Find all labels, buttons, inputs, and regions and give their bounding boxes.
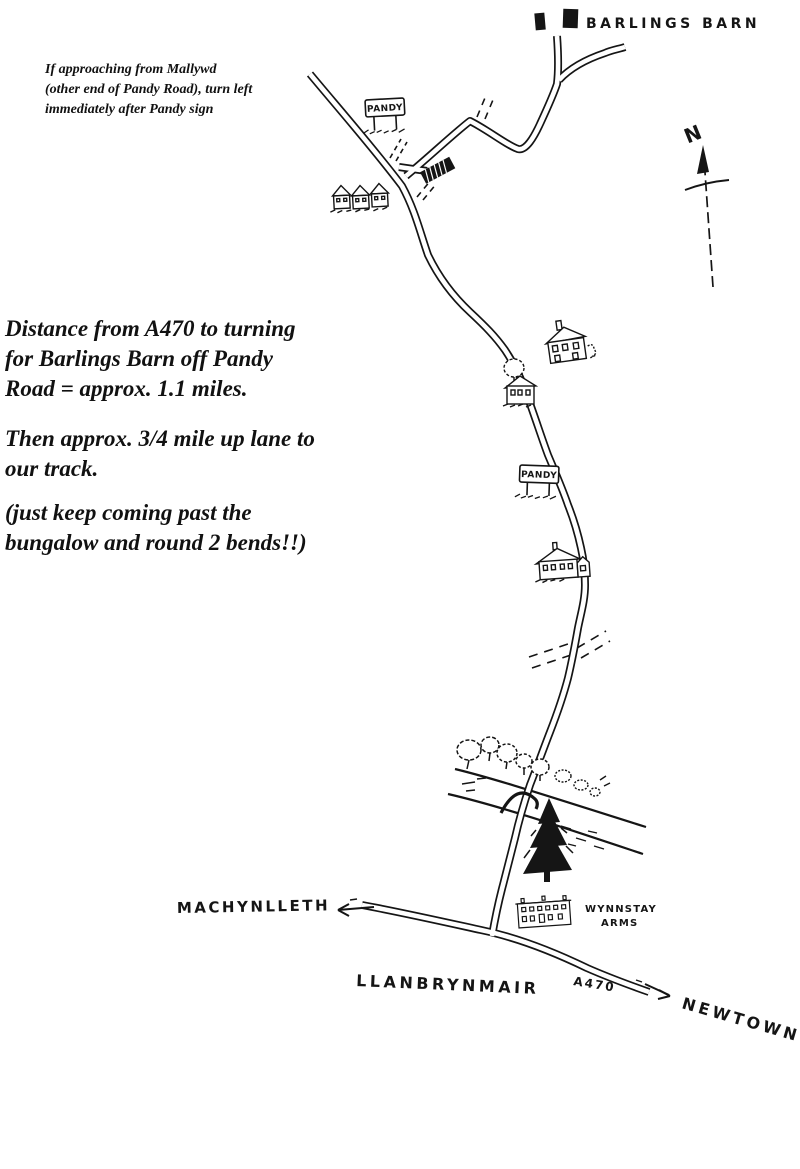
wynnstay-arms-building-icon — [515, 894, 573, 928]
roads-casing — [310, 36, 649, 992]
pandy-road — [310, 74, 585, 936]
dashed-track-marks — [390, 93, 610, 668]
roads-centre — [310, 36, 649, 992]
barlings-barn-label: BARLINGS BARN — [586, 16, 760, 32]
llanbrynmair-label: LLANBRYNMAIR — [356, 971, 540, 998]
dash-crossroad-right — [581, 641, 610, 658]
barn-building-large — [563, 9, 579, 29]
pandy-sign-top: PANDY — [362, 98, 406, 134]
north-arrow: N — [681, 119, 729, 287]
dash-track-a — [396, 142, 407, 161]
dash-crossroad-left — [529, 643, 571, 657]
approach-note: If approaching from Mallywd (other end o… — [45, 60, 252, 120]
newtown-label: NEWTOWN — [680, 994, 800, 1046]
wynnstay-arms-label-line2: ARMS — [601, 918, 638, 929]
dash-branch-top — [485, 95, 495, 119]
hand-drawn-directions-map: BARLINGS BARN — [0, 0, 800, 1169]
cottage-row-icon — [329, 183, 389, 213]
map-canvas: BARLINGS BARN — [0, 0, 800, 1169]
pandy-sign-middle-label: PANDY — [521, 470, 557, 481]
barlings-barn-buildings — [534, 9, 578, 31]
pandy-sign-top-label: PANDY — [367, 103, 404, 115]
house-with-tree-icon — [503, 359, 536, 407]
dash-track-a — [390, 139, 401, 158]
lane-note: Then approx. 3/4 mile up lane to our tra… — [5, 424, 315, 484]
distance-note: Distance from A470 to turning for Barlin… — [5, 314, 296, 404]
conifer-tree-icon — [523, 798, 573, 882]
wynnstay-arms-label: WYNNSTAY — [585, 904, 657, 915]
dash-track-b — [423, 183, 437, 200]
dash-track-b — [417, 180, 431, 197]
pandy-sign-middle: PANDY — [515, 465, 559, 499]
barn-building-small — [534, 13, 545, 31]
machynlleth-arrow — [338, 899, 374, 916]
house-icon — [543, 316, 596, 363]
dash-branch-top — [477, 93, 487, 117]
north-label: N — [681, 119, 708, 148]
machynlleth-label: MACHYNLLETH — [177, 896, 330, 917]
bends-note: (just keep coming past the bungalow and … — [5, 498, 307, 558]
bushes — [555, 770, 610, 796]
